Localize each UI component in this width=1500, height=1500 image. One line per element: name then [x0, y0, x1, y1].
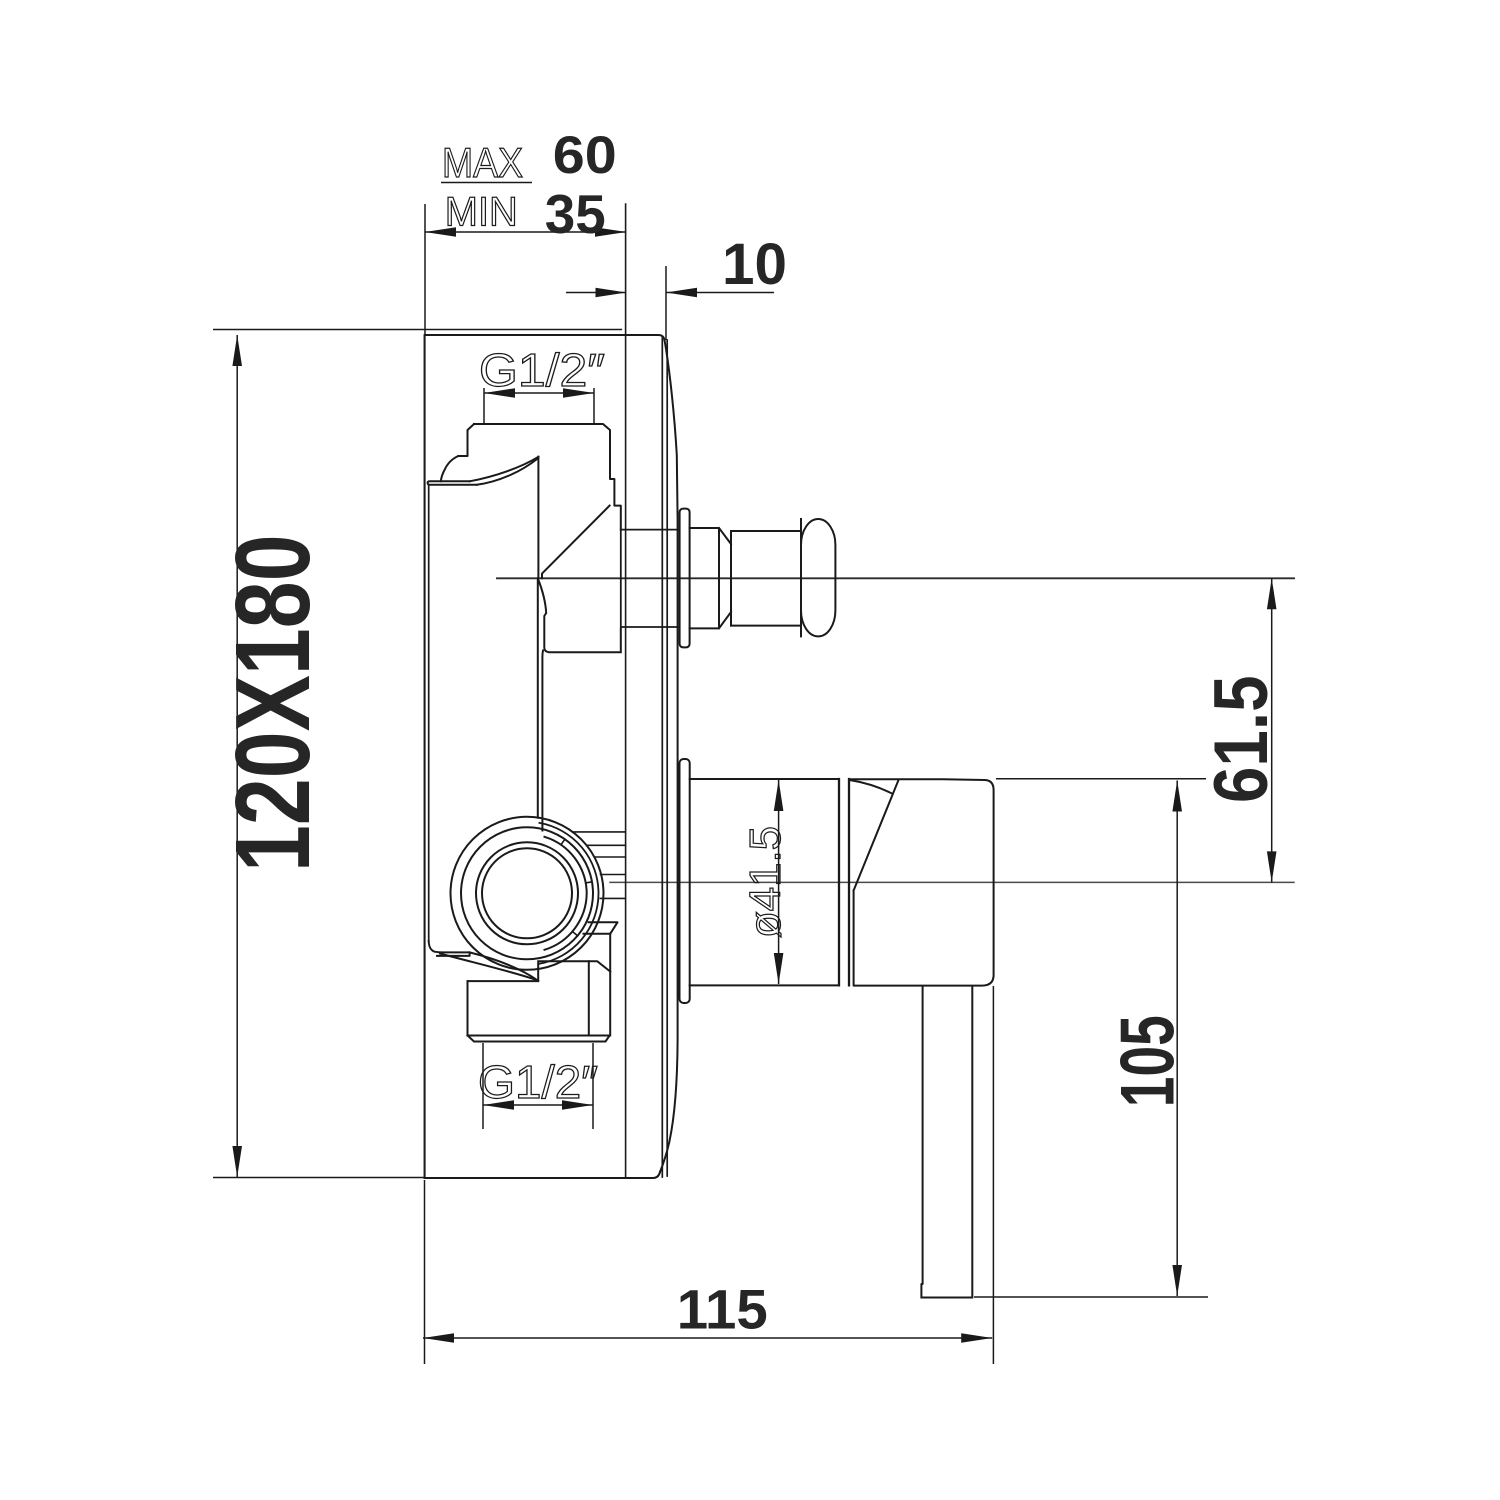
svg-text:G1/2″: G1/2″ — [478, 1056, 598, 1108]
svg-text:ø41.5: ø41.5 — [741, 826, 790, 938]
svg-text:60: 60 — [553, 126, 617, 185]
svg-text:35: 35 — [545, 183, 606, 245]
svg-text:G1/2″: G1/2″ — [479, 344, 605, 396]
svg-text:120X180: 120X180 — [214, 534, 332, 872]
svg-text:MAX: MAX — [442, 139, 523, 186]
svg-text:10: 10 — [722, 232, 787, 297]
svg-text:115: 115 — [677, 1277, 768, 1340]
svg-text:61.5: 61.5 — [1199, 676, 1284, 804]
svg-text:MIN: MIN — [445, 189, 518, 235]
svg-text:105: 105 — [1106, 1015, 1191, 1107]
